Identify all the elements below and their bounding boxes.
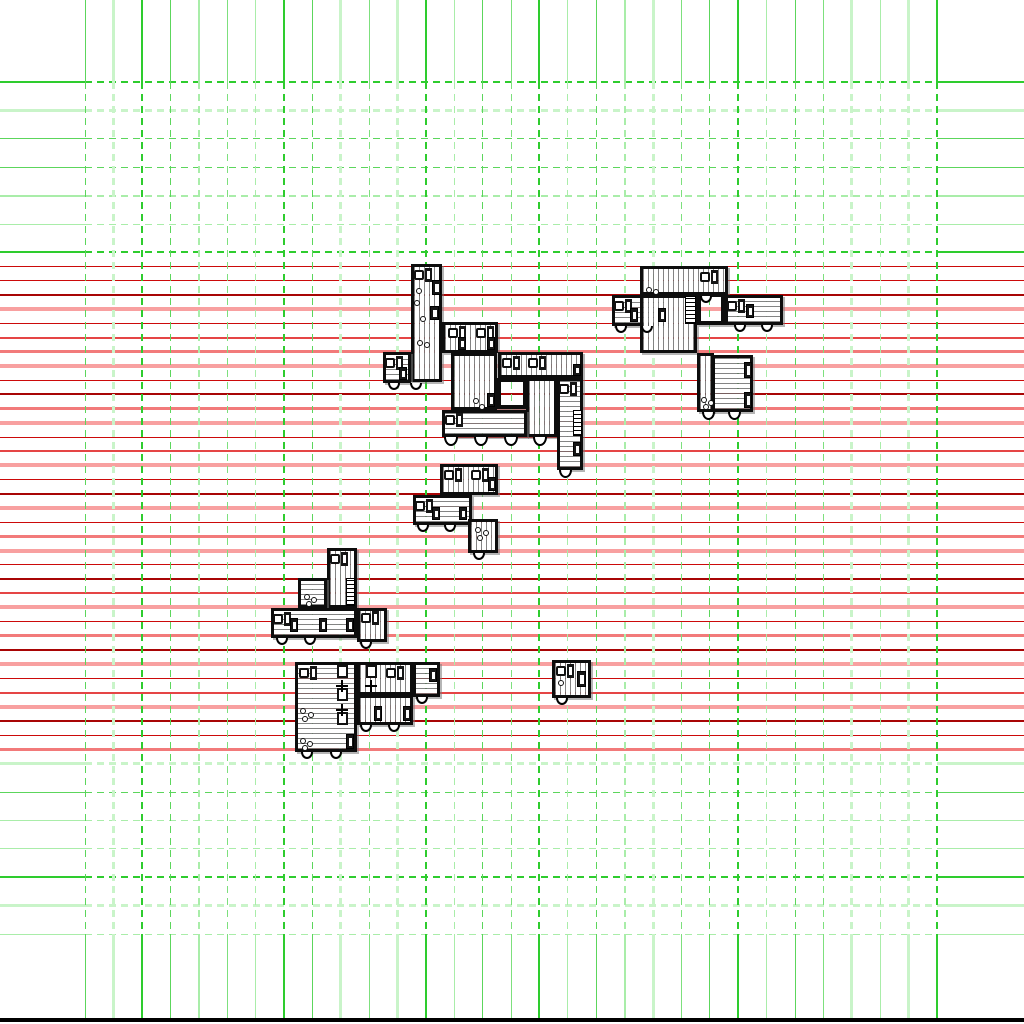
chair-icon [727,301,737,311]
stool-icon [703,404,709,410]
desk-slot [312,669,315,677]
door-arc-icon [444,437,458,446]
cabinet-icon [346,734,354,749]
grid-hline-red [0,649,1024,651]
cabinet-slot [349,622,352,629]
grid-vline [369,934,370,1018]
grid-vline [596,934,597,1018]
grid-hline-red [0,605,1024,609]
door-arc-icon [304,638,316,645]
cabinet-slot [490,397,493,404]
stool-icon [653,289,659,295]
cabinet-slot [322,622,325,629]
grid-vline [425,934,427,1018]
grid-vline [227,0,228,82]
chair-icon [385,358,395,368]
stool-icon [307,741,313,747]
grid-hline-red [0,307,1024,311]
grid-vline [283,934,285,1018]
grid-vline [170,934,171,1018]
grid-vline [795,0,796,82]
grid-hline-green [0,81,85,83]
grid-vline [823,0,824,82]
chair-icon [330,554,340,564]
cabinet-slot [435,284,439,292]
grid-vline [227,82,228,934]
grid-hline-red [0,692,1024,694]
grid-vline [511,0,512,82]
grid-vline [85,934,86,1018]
grid-hline-red [0,450,1024,452]
chair-icon [559,384,569,394]
stool-icon [306,601,312,607]
stool-icon [417,340,423,346]
door-arc-icon [360,642,372,649]
grid-vline [538,82,540,934]
grid-hline-red [0,720,1024,722]
chair-icon [448,328,458,338]
desk-icon [567,664,574,678]
grid-hline-green [937,762,1024,765]
chair-icon [361,613,371,623]
grid-hline-green [937,848,1024,849]
cabinet-icon [459,507,467,520]
grid-hline-green [0,109,85,112]
grid-vline [538,0,540,82]
grid-hline-red [0,621,1024,622]
stool-icon [473,398,479,404]
grid-vline [652,82,655,934]
cabinet-slot [580,675,584,684]
desk-icon [711,270,718,284]
grid-vline [339,934,342,1018]
desk-icon [539,356,546,370]
grid-vline [766,934,767,1018]
cabinet-slot [293,622,296,629]
grid-vline [681,82,682,934]
grid-vline [907,82,910,934]
grid-vline [681,934,682,1018]
grid-hline-green [937,109,1024,112]
grid-vline [482,0,483,82]
grid-vline [339,82,342,934]
stool-icon [420,316,426,322]
grid-vline [511,82,512,934]
door-arc-icon [559,470,572,478]
cabinet-slot [432,672,435,679]
desk-slot [569,667,572,675]
grid-hline-green [937,876,1024,878]
chair-icon [502,358,512,368]
grid-vline [681,0,682,82]
grid-vline [624,0,626,82]
stairs-icon [685,296,696,324]
stool-icon [302,716,308,722]
grid-hline-red [0,266,1024,267]
grid-vline [283,0,285,82]
grid-vline [850,82,853,934]
door-arc-icon [761,325,773,332]
grid-hline-green [0,848,85,849]
desk-chair-icon [559,382,577,396]
stool-icon [311,597,317,603]
room [468,519,498,553]
grid-hline-red [0,463,1024,467]
grid-vline [255,934,256,1018]
desk-icon [341,552,348,566]
grid-hline-red [0,735,1024,736]
plant-cross-icon [336,680,348,692]
stool-icon [477,535,483,541]
desk-slot [458,416,461,424]
chair-icon [528,358,538,368]
grid-hline-green [0,934,85,935]
grid-hline-red [0,506,1024,510]
desk-slot [541,359,544,367]
desk-icon [455,468,462,482]
chair-icon [444,470,454,480]
cabinet-slot [490,341,493,347]
door-arc-icon [417,525,429,532]
grid-vline [85,0,86,82]
grid-vline [198,82,200,934]
grid-hline-red [0,705,1024,709]
stool-icon [300,708,306,714]
cabinet-slot [491,481,494,488]
desk-icon [372,611,379,625]
grid-hline-green [937,81,1024,83]
cabinet-icon [432,280,441,295]
stool-icon [475,527,481,533]
grid-hline-red [0,662,1024,666]
chair-icon [614,301,624,311]
cabinet-icon [746,304,754,318]
grid-vline [396,0,399,82]
desk-chair-icon [445,413,463,427]
grid-vline [624,82,626,934]
chair-icon [273,614,283,624]
desk-slot [461,329,464,337]
cabinet-icon [487,337,495,350]
chair-icon [386,668,396,678]
grid-vline [198,0,200,82]
grid-vline [112,82,115,934]
grid-vline [652,934,655,1018]
desk-chair-icon [361,611,379,625]
grid-hline-green [937,195,1024,197]
grid-vline [850,0,853,82]
desk-icon [397,666,404,680]
desk-icon [425,268,432,282]
cabinet-slot [349,738,352,746]
grid-vline [795,82,796,934]
desk-slot [398,359,401,367]
desk-slot [489,329,492,337]
chair-icon [556,666,566,676]
desk-slot [515,359,518,367]
desk-chair-icon [330,552,348,566]
grid-vline [709,934,710,1018]
desk-chair-icon [471,468,489,482]
grid-hline-green [937,904,1024,907]
chair-icon [414,270,424,280]
grid-hline-red [0,564,1024,565]
grid-vline [907,934,910,1018]
grid-hline-red [0,522,1024,523]
stool-icon [416,288,422,294]
grid-vline [936,934,938,1018]
door-arc-icon [474,437,488,446]
grid-vline [766,82,767,934]
grid-hline-green [0,876,85,878]
cabinet-slot [633,312,636,319]
grid-vline [737,82,739,934]
grid-hline-red [0,280,1024,281]
desk-slot [713,273,716,281]
desk-slot [427,271,430,279]
grid-vline [823,82,824,934]
door-arc-icon [360,725,372,732]
grid-hline-red [0,634,1024,637]
desk-slot [343,555,346,563]
grid-vline [907,0,910,82]
desk-chair-icon [299,666,317,680]
grid-hline-green [0,251,85,253]
grid-hline-red [0,337,1024,339]
grid-hline-red [0,748,1024,751]
cabinet-icon [573,364,581,376]
grid-hline-green [0,195,85,197]
stool-icon [708,400,714,406]
grid-vline [482,934,483,1018]
stool-icon [483,530,489,536]
desk-slot [484,471,487,479]
desk-chair-icon [415,499,433,513]
cabinet-icon [432,507,440,520]
grid-vline [425,0,427,82]
chair-icon [415,501,425,511]
cabinet-icon [573,442,581,456]
chair-icon [299,668,309,678]
cabinet-slot [462,511,465,517]
grid-hline-green [0,138,85,139]
cabinet-icon [319,618,327,632]
stool-icon [424,342,430,348]
grid-vline [255,0,256,82]
grid-vline [652,0,655,82]
grid-hline-green [937,224,1024,225]
grid-vline [141,82,143,934]
cabinet-icon [488,477,496,491]
desk-icon [310,666,317,680]
desk-icon [570,382,577,396]
cabinet-slot [576,446,579,453]
grid-hline-green [937,820,1024,821]
door-arc-icon [473,553,485,560]
stairs-icon [346,578,355,606]
grid-vline [709,0,710,82]
desk-slot [572,385,575,393]
grid-vline [369,82,370,934]
grid-vline [936,82,938,934]
door-arc-icon [702,412,715,420]
desk-chair-icon [273,612,291,626]
grid-vline [396,82,399,934]
chair-icon [445,415,455,425]
room [526,378,557,437]
room [298,578,327,608]
stool-icon [308,712,314,718]
grid-vline [511,934,512,1018]
cabinet-slot [747,366,750,375]
cabinet-slot [747,396,750,405]
grid-vline [567,82,568,934]
grid-hline-red [0,323,1024,324]
grid-vline [596,0,597,82]
desk-slot [740,302,743,310]
grid-hline-green [0,762,85,765]
map-canvas[interactable] [0,0,1024,1024]
grid-vline [795,934,796,1018]
cabinet-slot [749,308,752,315]
cabinet-icon [290,618,298,632]
plant-cross-icon [336,704,348,716]
desk-chair-icon [528,356,546,370]
cabinet-icon [429,668,437,682]
grid-hline-green [0,904,85,907]
desk-slot [428,502,431,510]
cabinet-icon [399,367,407,380]
chair-icon [700,272,710,282]
desk-chair-icon [556,664,574,678]
desk-icon [456,413,463,427]
grid-vline [880,0,881,82]
grid-vline [170,82,171,934]
desk-icon [738,299,745,313]
cabinet-icon [374,706,382,721]
grid-hline-red [0,294,1024,296]
grid-vline [880,82,881,934]
grid-vline [850,934,853,1018]
grid-vline [85,82,86,934]
grid-vline [198,934,200,1018]
cabinet-icon [403,706,411,721]
door-arc-icon [276,638,288,645]
stool-icon [304,594,310,600]
cabinet-slot [377,710,380,718]
cabinet-slot [435,511,438,517]
door-arc-icon [410,383,422,390]
table-icon [337,665,348,678]
desk-icon [513,356,520,370]
desk-chair-icon [727,299,745,313]
grid-vline [312,934,313,1018]
desk-slot [399,669,402,677]
door-arc-icon [504,437,518,446]
stool-icon [646,287,652,293]
grid-vline [482,82,483,934]
cabinet-slot [576,368,579,373]
desk-chair-icon [444,468,462,482]
desk-slot [374,614,377,622]
grid-vline [112,934,115,1018]
grid-vline [880,934,881,1018]
desk-chair-icon [502,356,520,370]
grid-vline [454,934,455,1018]
desk-slot [286,615,289,623]
stairs-icon [573,410,582,436]
grid-hline-red [0,592,1024,594]
grid-vline [766,0,767,82]
grid-vline [312,82,313,934]
grid-vline [709,82,710,934]
grid-vline [596,82,597,934]
chair-icon [471,470,481,480]
grid-vline [227,934,228,1018]
cabinet-slot [406,710,409,718]
grid-hline-green [937,251,1024,253]
grid-vline [141,0,143,82]
chair-icon [476,328,486,338]
grid-hline-red [0,678,1024,679]
cabinet-slot [661,312,664,319]
cabinet-icon [577,671,586,687]
grid-vline [312,0,313,82]
stool-icon [302,745,308,751]
cabinet-icon [630,308,638,322]
cabinet-icon [744,362,752,378]
grid-vline [538,934,540,1018]
stool-icon [414,300,420,306]
grid-hline-green [0,224,85,225]
table-icon [366,665,377,678]
cabinet-icon [458,337,466,350]
grid-vline [369,0,370,82]
grid-hline-green [937,792,1024,793]
stool-icon [479,404,485,410]
grid-hline-green [0,167,85,168]
stool-icon [300,738,306,744]
cabinet-icon [658,308,666,322]
grid-vline [737,934,739,1018]
grid-hline-red [0,578,1024,580]
desk-chair-icon [414,268,432,282]
cabinet-slot [461,341,464,347]
grid-hline-green [937,167,1024,168]
grid-vline [936,0,938,82]
cabinet-icon [346,618,354,632]
grid-vline [255,82,256,934]
grid-hline-green [0,792,85,793]
grid-vline [170,0,171,82]
stool-icon [701,397,707,403]
grid-hline-red [0,535,1024,538]
cabinet-slot [433,310,437,317]
grid-hline-green [0,820,85,821]
room [497,378,527,409]
grid-vline [141,934,143,1018]
plant-cross-icon [365,680,377,692]
grid-vline [454,0,455,82]
grid-hline-red [0,493,1024,495]
grid-vline [112,0,115,82]
grid-hline-green [937,934,1024,935]
map-baseline [0,1018,1024,1022]
grid-vline [567,934,568,1018]
cabinet-icon [744,392,752,408]
door-arc-icon [533,437,547,446]
stool-icon [558,680,564,686]
